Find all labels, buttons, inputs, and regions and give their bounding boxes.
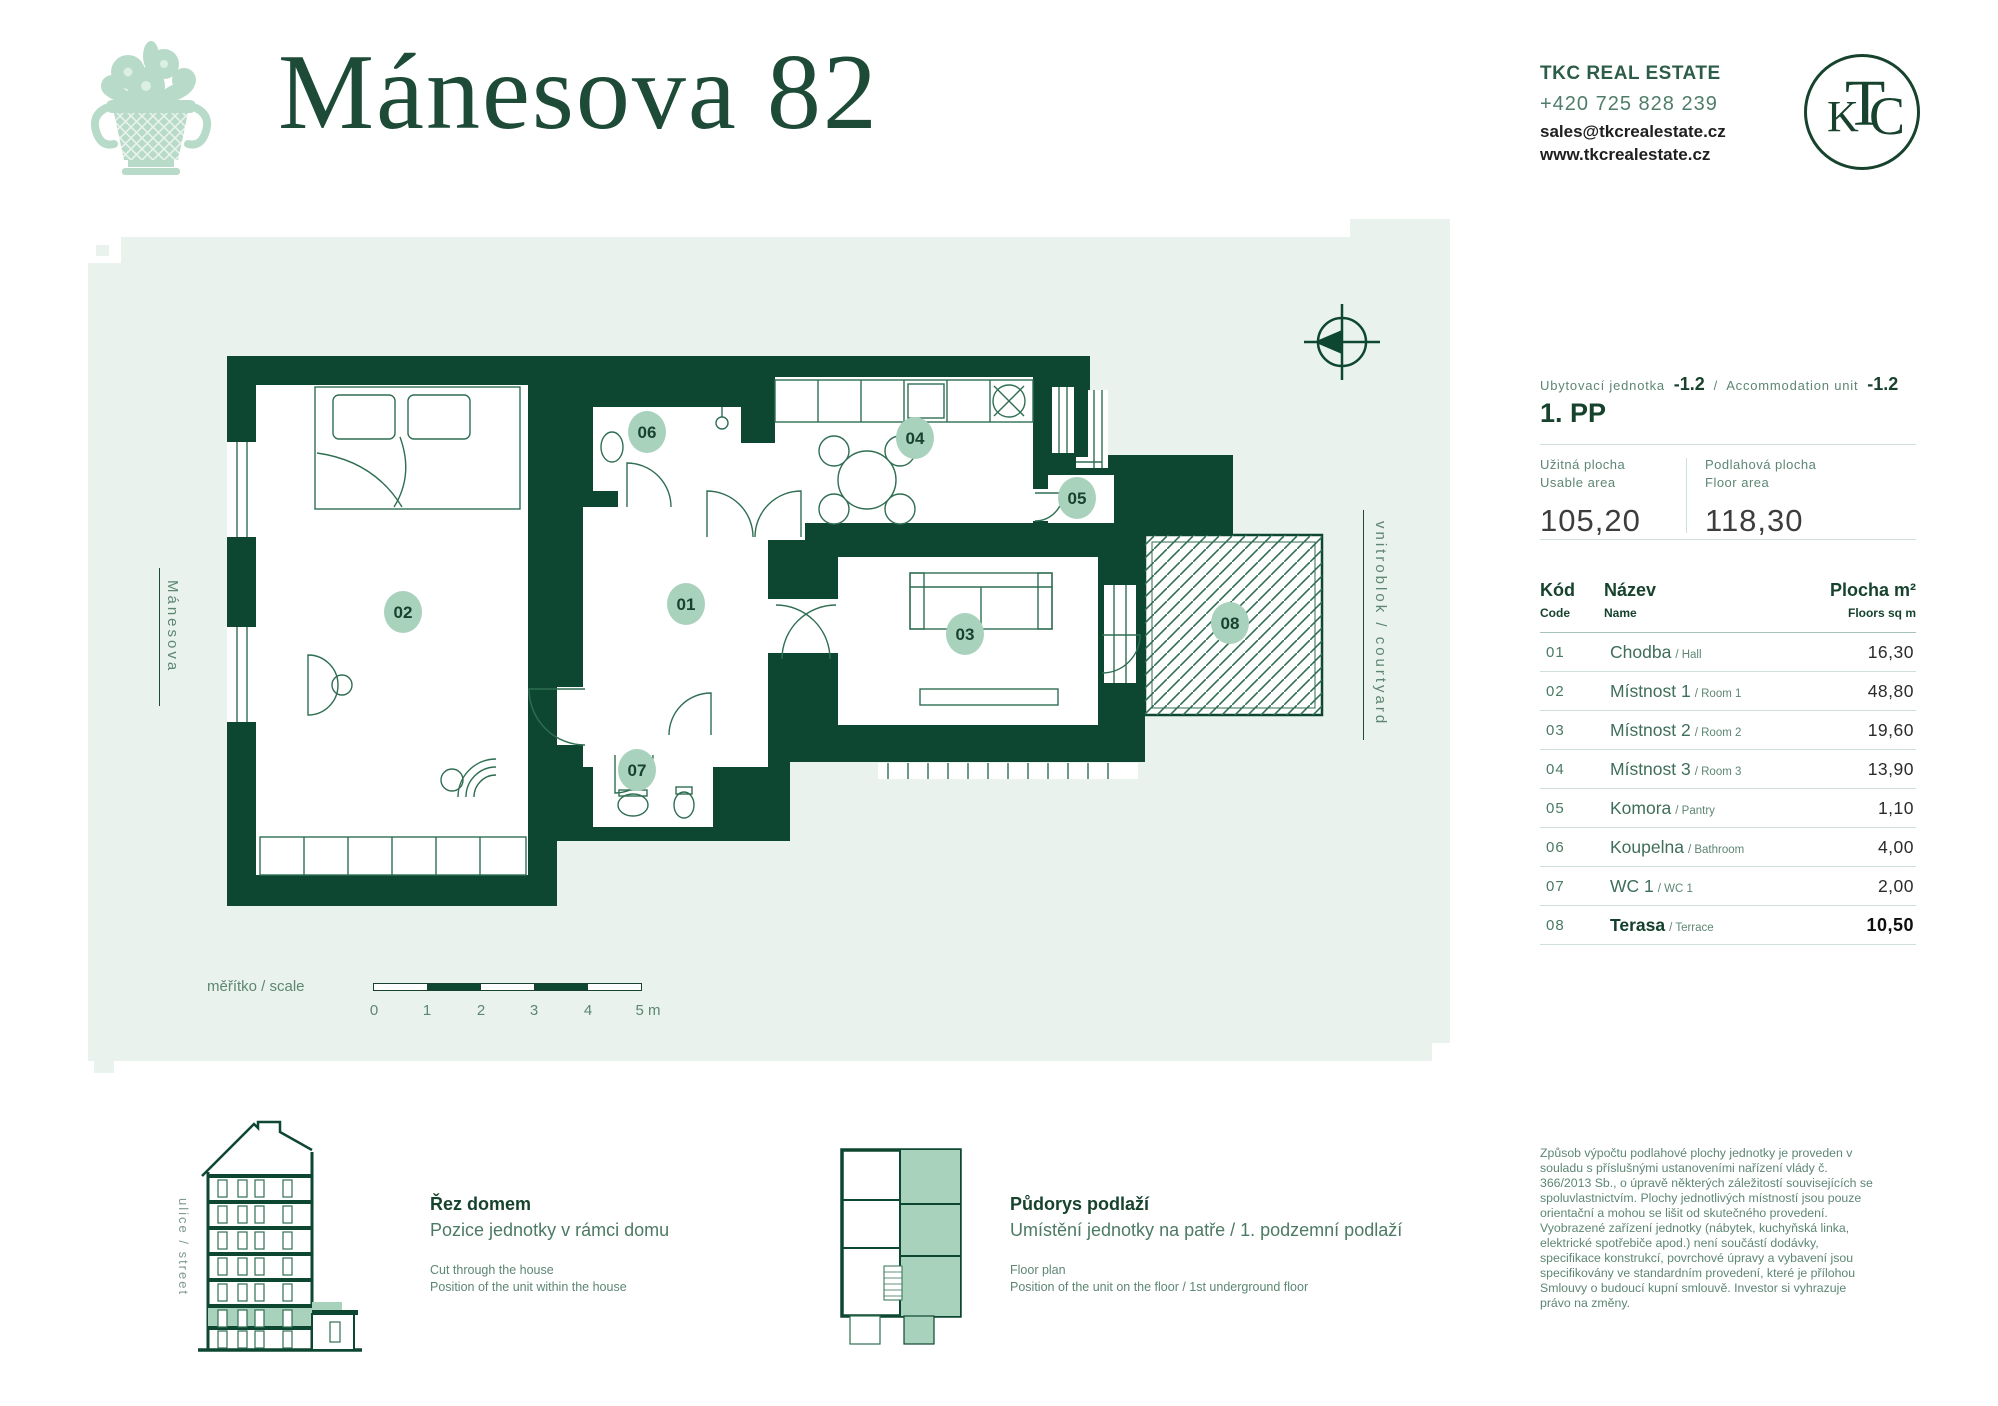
scale-tick: 0 (370, 1002, 378, 1019)
room-table: Kód Code Název Name Plocha m² Floors sq … (1540, 580, 1916, 945)
room-badge-08: 08 (1211, 602, 1249, 644)
scale-tick: 1 (423, 1002, 431, 1019)
header-name-cz: Název (1604, 580, 1830, 601)
room-badge-04: 04 (896, 417, 934, 459)
floor-plan-drawing: 01 02 03 04 05 06 07 08 (88, 237, 1450, 1061)
room-badge-01: 01 (667, 583, 705, 625)
section-title: Řez domem (430, 1194, 760, 1215)
room-badge-07: 07 (618, 749, 656, 791)
email-address: sales@tkcrealestate.cz (1540, 123, 1726, 140)
header-area-cz: Plocha m² (1830, 580, 1916, 601)
scale-tick: 4 (584, 1002, 592, 1019)
svg-text:03: 03 (956, 625, 975, 644)
usable-area-label-en: Usable area (1540, 475, 1616, 490)
tkc-monogram-logo: K T C (1804, 54, 1920, 170)
scale-tick: 2 (477, 1002, 485, 1019)
table-row: 07 WC 1/ WC 1 2,00 (1540, 867, 1916, 906)
section-text-block: Řez domem Pozice jednotky v rámci domu C… (430, 1194, 760, 1309)
company-name: TKC REAL ESTATE (1540, 64, 1726, 83)
unit-identifier: Ubytovací jednotka -1.2 / Accommodation … (1540, 374, 1898, 395)
table-row: 01 Chodba/ Hall 16,30 (1540, 633, 1916, 672)
courtyard-label-line (1363, 510, 1364, 740)
svg-text:04: 04 (906, 429, 925, 448)
room-table-header: Kód Code Název Name Plocha m² Floors sq … (1540, 580, 1916, 633)
floor-title: 1. PP (1540, 398, 1606, 429)
divider-rule (1540, 444, 1916, 445)
room-badge-06: 06 (628, 411, 666, 453)
room-areas (227, 377, 1138, 875)
phone-number: +420 725 828 239 (1540, 94, 1726, 114)
usable-area-value: 105,20 (1540, 503, 1686, 539)
room-badge-05: 05 (1058, 477, 1096, 519)
legal-disclaimer: Způsob výpočtu podlahové plochy jednotky… (1540, 1146, 1876, 1311)
header-name-en: Name (1604, 606, 1830, 620)
section-title-en: Cut through the house Position of the un… (430, 1262, 760, 1297)
floorplan-sheet: { "header": { "title": "Mánesova 82", "c… (0, 0, 1998, 1406)
website-url: www.tkcrealestate.cz (1540, 146, 1726, 163)
floorplan-text-block: Půdorys podlaží Umístění jednotky na pat… (1010, 1194, 1440, 1309)
table-row: 03 Místnost 2/ Room 2 19,60 (1540, 711, 1916, 750)
svg-text:05: 05 (1068, 489, 1087, 508)
usable-area-cell: Užitná plocha Usable area 105,20 (1540, 456, 1686, 539)
page-title: Mánesova 82 (278, 34, 879, 153)
area-summary: Užitná plocha Usable area 105,20 Podlaho… (1540, 456, 1916, 539)
table-row: 02 Místnost 1/ Room 1 48,80 (1540, 672, 1916, 711)
svg-text:06: 06 (638, 423, 657, 442)
svg-text:01: 01 (677, 595, 696, 614)
unit-label-cz: Ubytovací jednotka (1540, 378, 1665, 393)
corner-tab (1350, 219, 1450, 237)
compass-icon (1304, 304, 1380, 380)
table-row: 06 Koupelna/ Bathroom 4,00 (1540, 828, 1916, 867)
table-row: 04 Místnost 3/ Room 3 13,90 (1540, 750, 1916, 789)
usable-area-label-cz: Užitná plocha (1540, 457, 1625, 472)
room-badge-02: 02 (384, 591, 422, 633)
room-badge-03: 03 (946, 613, 984, 655)
table-row: 05 Komora/ Pantry 1,10 (1540, 789, 1916, 828)
monogram-letter-c: C (1869, 89, 1905, 143)
header-code-cz: Kód (1540, 580, 1604, 601)
scale-label: měřítko / scale (207, 978, 305, 995)
floorplan-title: Půdorys podlaží (1010, 1194, 1440, 1215)
building-section-drawing (198, 1118, 362, 1358)
scale-tick: 3 (530, 1002, 538, 1019)
scale-tick: 5 m (635, 1002, 660, 1019)
floor-area-value: 118,30 (1705, 503, 1851, 539)
header-area-en: Floors sq m (1830, 606, 1916, 620)
floor-area-label-en: Floor area (1705, 475, 1769, 490)
divider-rule (1540, 539, 1916, 540)
floorplan-subtitle: Umístění jednotky na patře / 1. podzemní… (1010, 1219, 1440, 1242)
unit-label-en: Accommodation unit (1726, 378, 1858, 393)
basket-logo-icon (76, 28, 226, 186)
unit-value-cz: -1.2 (1674, 374, 1705, 394)
section-subtitle: Pozice jednotky v rámci domu (430, 1219, 760, 1242)
unit-separator: / (1714, 378, 1718, 393)
contact-block: TKC REAL ESTATE +420 725 828 239 sales@t… (1540, 64, 1726, 169)
table-row-terrace: 08 Terasa/ Terrace 10,50 (1540, 906, 1916, 945)
unit-value-en: -1.2 (1867, 374, 1898, 394)
scale-bar (373, 983, 642, 991)
floor-area-label-cz: Podlahová plocha (1705, 457, 1816, 472)
svg-text:07: 07 (628, 761, 647, 780)
courtyard-label: vnitroblok / courtyard (1372, 521, 1389, 726)
floor-area-cell: Podlahová plocha Floor area 118,30 (1687, 456, 1851, 539)
highlighted-unit (900, 1150, 960, 1316)
street-side-label: ulice / street (176, 1198, 191, 1296)
mini-floorplan-drawing (840, 1148, 964, 1352)
header-code-en: Code (1540, 606, 1604, 620)
svg-text:02: 02 (394, 603, 413, 622)
street-label-line (159, 568, 160, 706)
svg-text:08: 08 (1221, 614, 1240, 633)
floorplan-title-en: Floor plan Position of the unit on the f… (1010, 1262, 1440, 1297)
street-label: Mánesova (164, 580, 181, 673)
corner-tab (94, 1061, 114, 1073)
